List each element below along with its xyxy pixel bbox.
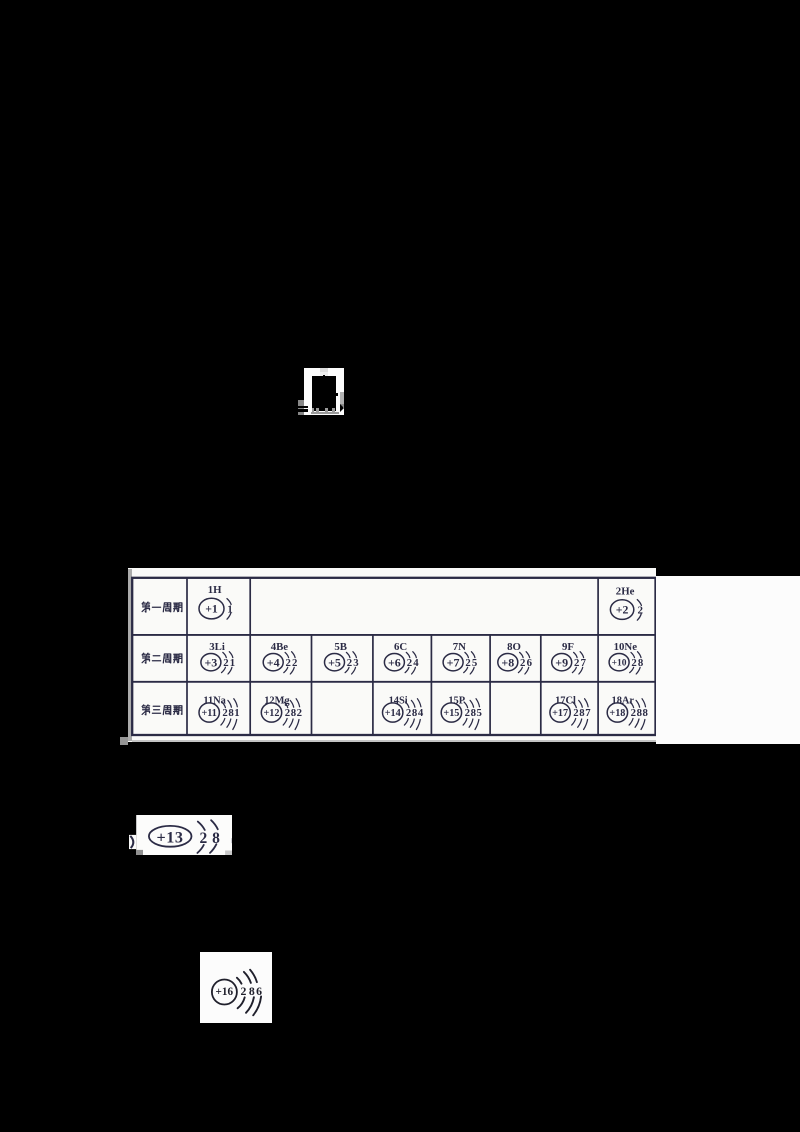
svg-text:+12: +12 [263,708,279,719]
svg-text:2: 2 [222,707,227,719]
svg-text:+7: +7 [446,655,459,669]
svg-text:4: 4 [413,656,419,668]
svg-text:8O: 8O [507,641,521,653]
svg-text:2: 2 [296,707,301,719]
svg-text:5B: 5B [334,641,347,653]
svg-text:1H: 1H [207,584,221,596]
svg-text:1: 1 [234,707,239,719]
svg-text:2: 2 [240,984,246,998]
svg-text:5: 5 [476,707,481,719]
svg-text:3: 3 [353,656,359,668]
svg-text:6C: 6C [393,641,406,653]
svg-text:3Li: 3Li [209,641,225,653]
svg-text:4: 4 [417,707,423,719]
svg-text:10Ne: 10Ne [613,641,637,653]
svg-text:+5: +5 [328,655,341,669]
svg-text:+17: +17 [552,708,568,719]
svg-text:2: 2 [630,707,635,719]
svg-text:+3: +3 [204,655,217,669]
svg-text:7: 7 [585,707,591,719]
svg-text:+14: +14 [384,708,400,719]
svg-text:9F: 9F [562,641,574,653]
svg-text:8: 8 [637,656,643,668]
svg-text:6: 6 [526,656,532,668]
svg-text:+10: +10 [611,658,626,668]
svg-text:7N: 7N [452,641,465,653]
svg-text:+9: +9 [555,655,568,669]
svg-text:+15: +15 [443,708,459,719]
svg-text:+6: +6 [387,655,400,669]
svg-text:8: 8 [642,707,648,719]
svg-text:2: 2 [405,707,410,719]
svg-text:+13: +13 [156,829,183,847]
svg-text:+18: +18 [609,708,625,719]
svg-text:+1: +1 [205,601,218,615]
svg-text:2: 2 [464,707,469,719]
svg-text:+11: +11 [201,708,216,719]
svg-text:+8: +8 [501,655,514,669]
svg-text:2: 2 [284,707,289,719]
svg-text:+16: +16 [215,986,233,998]
svg-text:2He: 2He [615,585,634,597]
svg-text:2: 2 [573,707,578,719]
svg-text:+2: +2 [615,602,628,616]
svg-text:8: 8 [248,984,254,998]
svg-text:4Be: 4Be [270,641,288,653]
svg-text:+4: +4 [266,655,279,669]
svg-text:7: 7 [580,656,586,668]
